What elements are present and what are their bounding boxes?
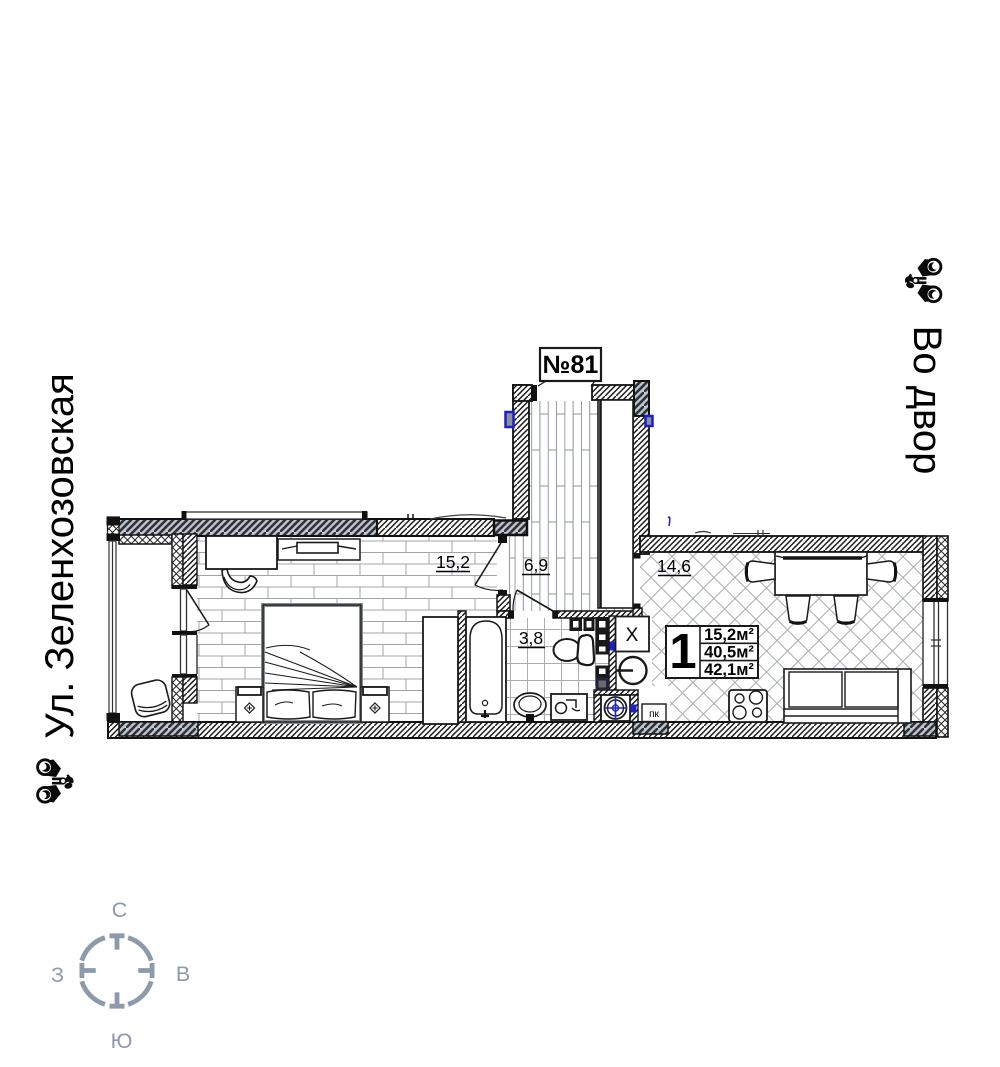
svg-text:14,6: 14,6 xyxy=(657,556,691,576)
svg-text:15,2м²: 15,2м² xyxy=(704,626,754,644)
svg-text:1: 1 xyxy=(669,625,696,679)
svg-text:15,2: 15,2 xyxy=(436,552,470,572)
svg-text:В: В xyxy=(176,962,190,986)
svg-text:40,5м²: 40,5м² xyxy=(704,644,754,662)
svg-text:Ю: Ю xyxy=(111,1029,133,1053)
svg-text:З: З xyxy=(51,963,64,987)
svg-text:№81: №81 xyxy=(543,351,599,379)
svg-text:пк: пк xyxy=(649,709,659,720)
svg-text:42,1м²: 42,1м² xyxy=(704,661,754,679)
svg-text:Во двор: Во двор xyxy=(905,326,949,475)
svg-text:С: С xyxy=(112,898,128,922)
svg-text:X: X xyxy=(626,625,639,646)
svg-text:3,8: 3,8 xyxy=(519,628,543,648)
svg-text:6,9: 6,9 xyxy=(524,555,548,575)
svg-text:Ул. Зеленхозовская: Ул. Зеленхозовская xyxy=(38,373,82,739)
